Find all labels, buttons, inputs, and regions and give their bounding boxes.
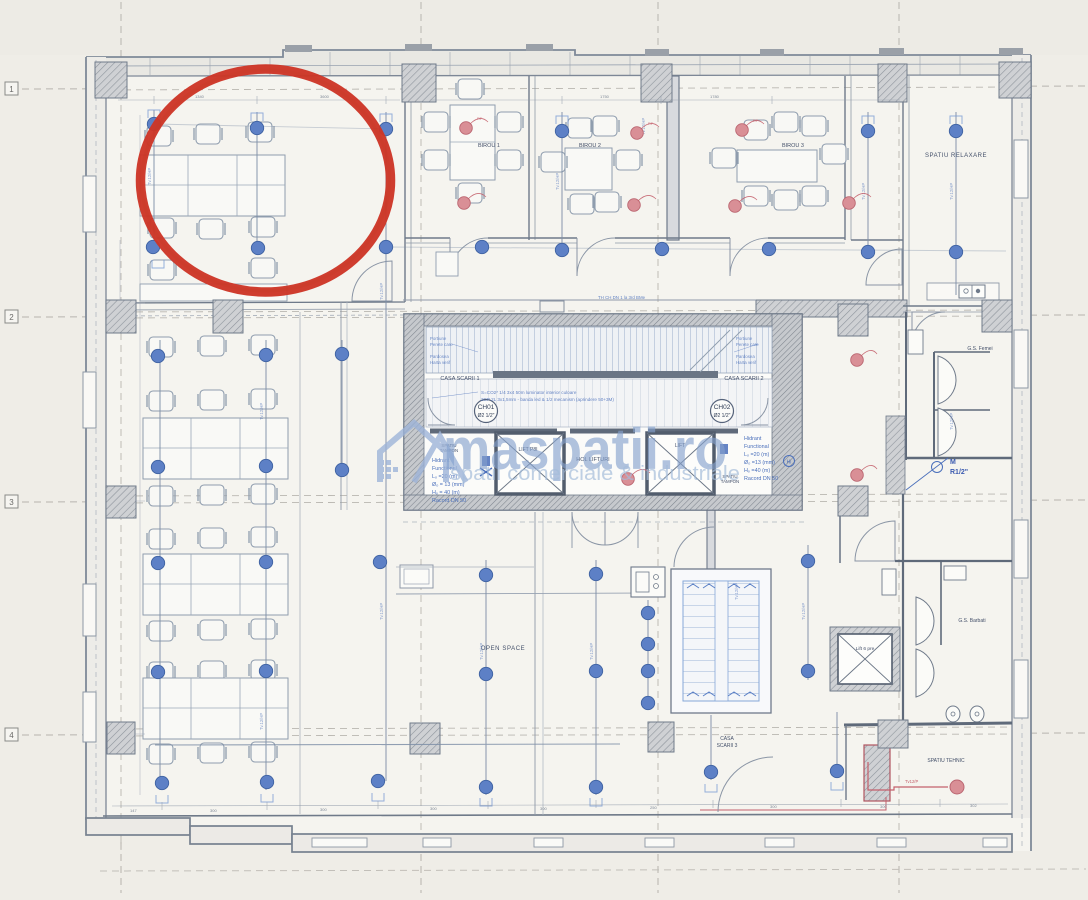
svg-text:RF: RF [753, 119, 759, 123]
svg-text:300: 300 [210, 808, 217, 813]
svg-text:1780: 1780 [710, 94, 720, 99]
svg-text:Tv.12/HP: Tv.12/HP [379, 603, 384, 620]
svg-text:RF: RF [648, 122, 654, 126]
svg-text:300: 300 [770, 804, 777, 809]
svg-text:CASA SCARII 2: CASA SCARII 2 [724, 376, 763, 382]
svg-text:SCARII 3: SCARII 3 [717, 743, 738, 749]
svg-text:RF: RF [477, 117, 483, 121]
svg-text:Tv.12/HP: Tv.12/HP [259, 403, 264, 420]
svg-text:CASA SCARII 1: CASA SCARII 1 [440, 376, 479, 382]
svg-text:Hₒ = 40 (m): Hₒ = 40 (m) [432, 490, 460, 496]
svg-text:Tv.12/HP: Tv.12/HP [379, 283, 384, 300]
svg-text:R1/2": R1/2" [950, 469, 968, 476]
svg-text:2: 2 [9, 313, 14, 322]
svg-text:Pardosea: Pardosea [430, 354, 449, 359]
svg-text:G.S. Barbati: G.S. Barbati [958, 618, 985, 624]
svg-text:Tv.12/HP: Tv.12/HP [861, 183, 866, 200]
svg-text:Harta verif: Harta verif [430, 360, 451, 365]
svg-text:Hₒ =40 (m): Hₒ =40 (m) [744, 468, 770, 474]
svg-text:300: 300 [540, 806, 547, 811]
svg-text:CH01: CH01 [478, 404, 495, 411]
svg-text:CASA: CASA [720, 736, 734, 742]
svg-text:302: 302 [970, 803, 977, 808]
svg-text:3600: 3600 [320, 94, 330, 99]
svg-text:BIROU 3: BIROU 3 [782, 143, 804, 149]
svg-text:1750: 1750 [600, 94, 610, 99]
svg-text:Øₒ =13 (mm): Øₒ =13 (mm) [744, 460, 775, 466]
svg-text:Tv.12/HP: Tv.12/HP [949, 183, 954, 200]
svg-text:BIROU 2: BIROU 2 [579, 143, 601, 149]
svg-text:300: 300 [320, 807, 327, 812]
svg-text:BIROU 1: BIROU 1 [478, 143, 500, 149]
svg-text:Racord DN 50: Racord DN 50 [432, 498, 466, 504]
svg-text:G.S. Femei: G.S. Femei [967, 346, 992, 352]
svg-text:Tv.12/HP: Tv.12/HP [555, 173, 560, 190]
svg-text:Tv.12/HP: Tv.12/HP [589, 643, 594, 660]
svg-text:3: 3 [9, 498, 14, 507]
svg-text:147: 147 [130, 808, 137, 813]
svg-text:Tv.12/HP: Tv.12/HP [949, 413, 954, 430]
svg-text:TH CH DN 1 la 3rd BMe: TH CH DN 1 la 3rd BMe [598, 295, 646, 300]
svg-text:SPATIU TEHNIC: SPATIU TEHNIC [927, 758, 965, 764]
svg-text:250: 250 [650, 805, 657, 810]
svg-text:1340: 1340 [195, 94, 205, 99]
svg-text:Portiune: Portiune [736, 336, 753, 341]
svg-text:300: 300 [880, 804, 887, 809]
svg-text:Racord DN 50: Racord DN 50 [744, 476, 778, 482]
svg-text:spatii comerciale & industrial: spatii comerciale & industriale [450, 463, 740, 485]
svg-text:M: M [950, 459, 956, 466]
svg-text:Tv.12/HP: Tv.12/HP [734, 583, 739, 600]
svg-text:Perete care: Perete care [430, 342, 453, 347]
svg-text:4: 4 [9, 731, 14, 740]
svg-text:Harta verif: Harta verif [736, 360, 757, 365]
svg-text:OPEN SPACE: OPEN SPACE [481, 646, 526, 652]
svg-text:Tv.12/HP: Tv.12/HP [801, 603, 806, 620]
svg-text:2CP 2L 3x1,5mm - banda led & 1: 2CP 2L 3x1,5mm - banda led & 1/2 mecanis… [481, 397, 614, 402]
svg-text:S=CO2* 1/4 3x4 50m luminator i: S=CO2* 1/4 3x4 50m luminator interior cu… [481, 390, 577, 395]
svg-text:Lift 6 pre: Lift 6 pre [856, 646, 875, 652]
svg-text:300: 300 [430, 806, 437, 811]
svg-text:Hidrant: Hidrant [744, 436, 762, 442]
svg-text:Tv.12/HP: Tv.12/HP [147, 168, 152, 185]
svg-text:Tv12/P: Tv12/P [905, 779, 918, 784]
svg-text:Portiune: Portiune [430, 336, 447, 341]
svg-text:Tv.12/HP: Tv.12/HP [479, 643, 484, 660]
svg-text:Hi: Hi [787, 460, 792, 466]
svg-text:Functional: Functional [744, 444, 769, 450]
svg-text:Tv.12/HP: Tv.12/HP [259, 713, 264, 730]
svg-text:CH02: CH02 [714, 404, 731, 411]
svg-text:1: 1 [9, 85, 14, 94]
svg-text:Lₒ =20 (m): Lₒ =20 (m) [744, 452, 769, 458]
svg-text:Pardosea: Pardosea [736, 354, 755, 359]
